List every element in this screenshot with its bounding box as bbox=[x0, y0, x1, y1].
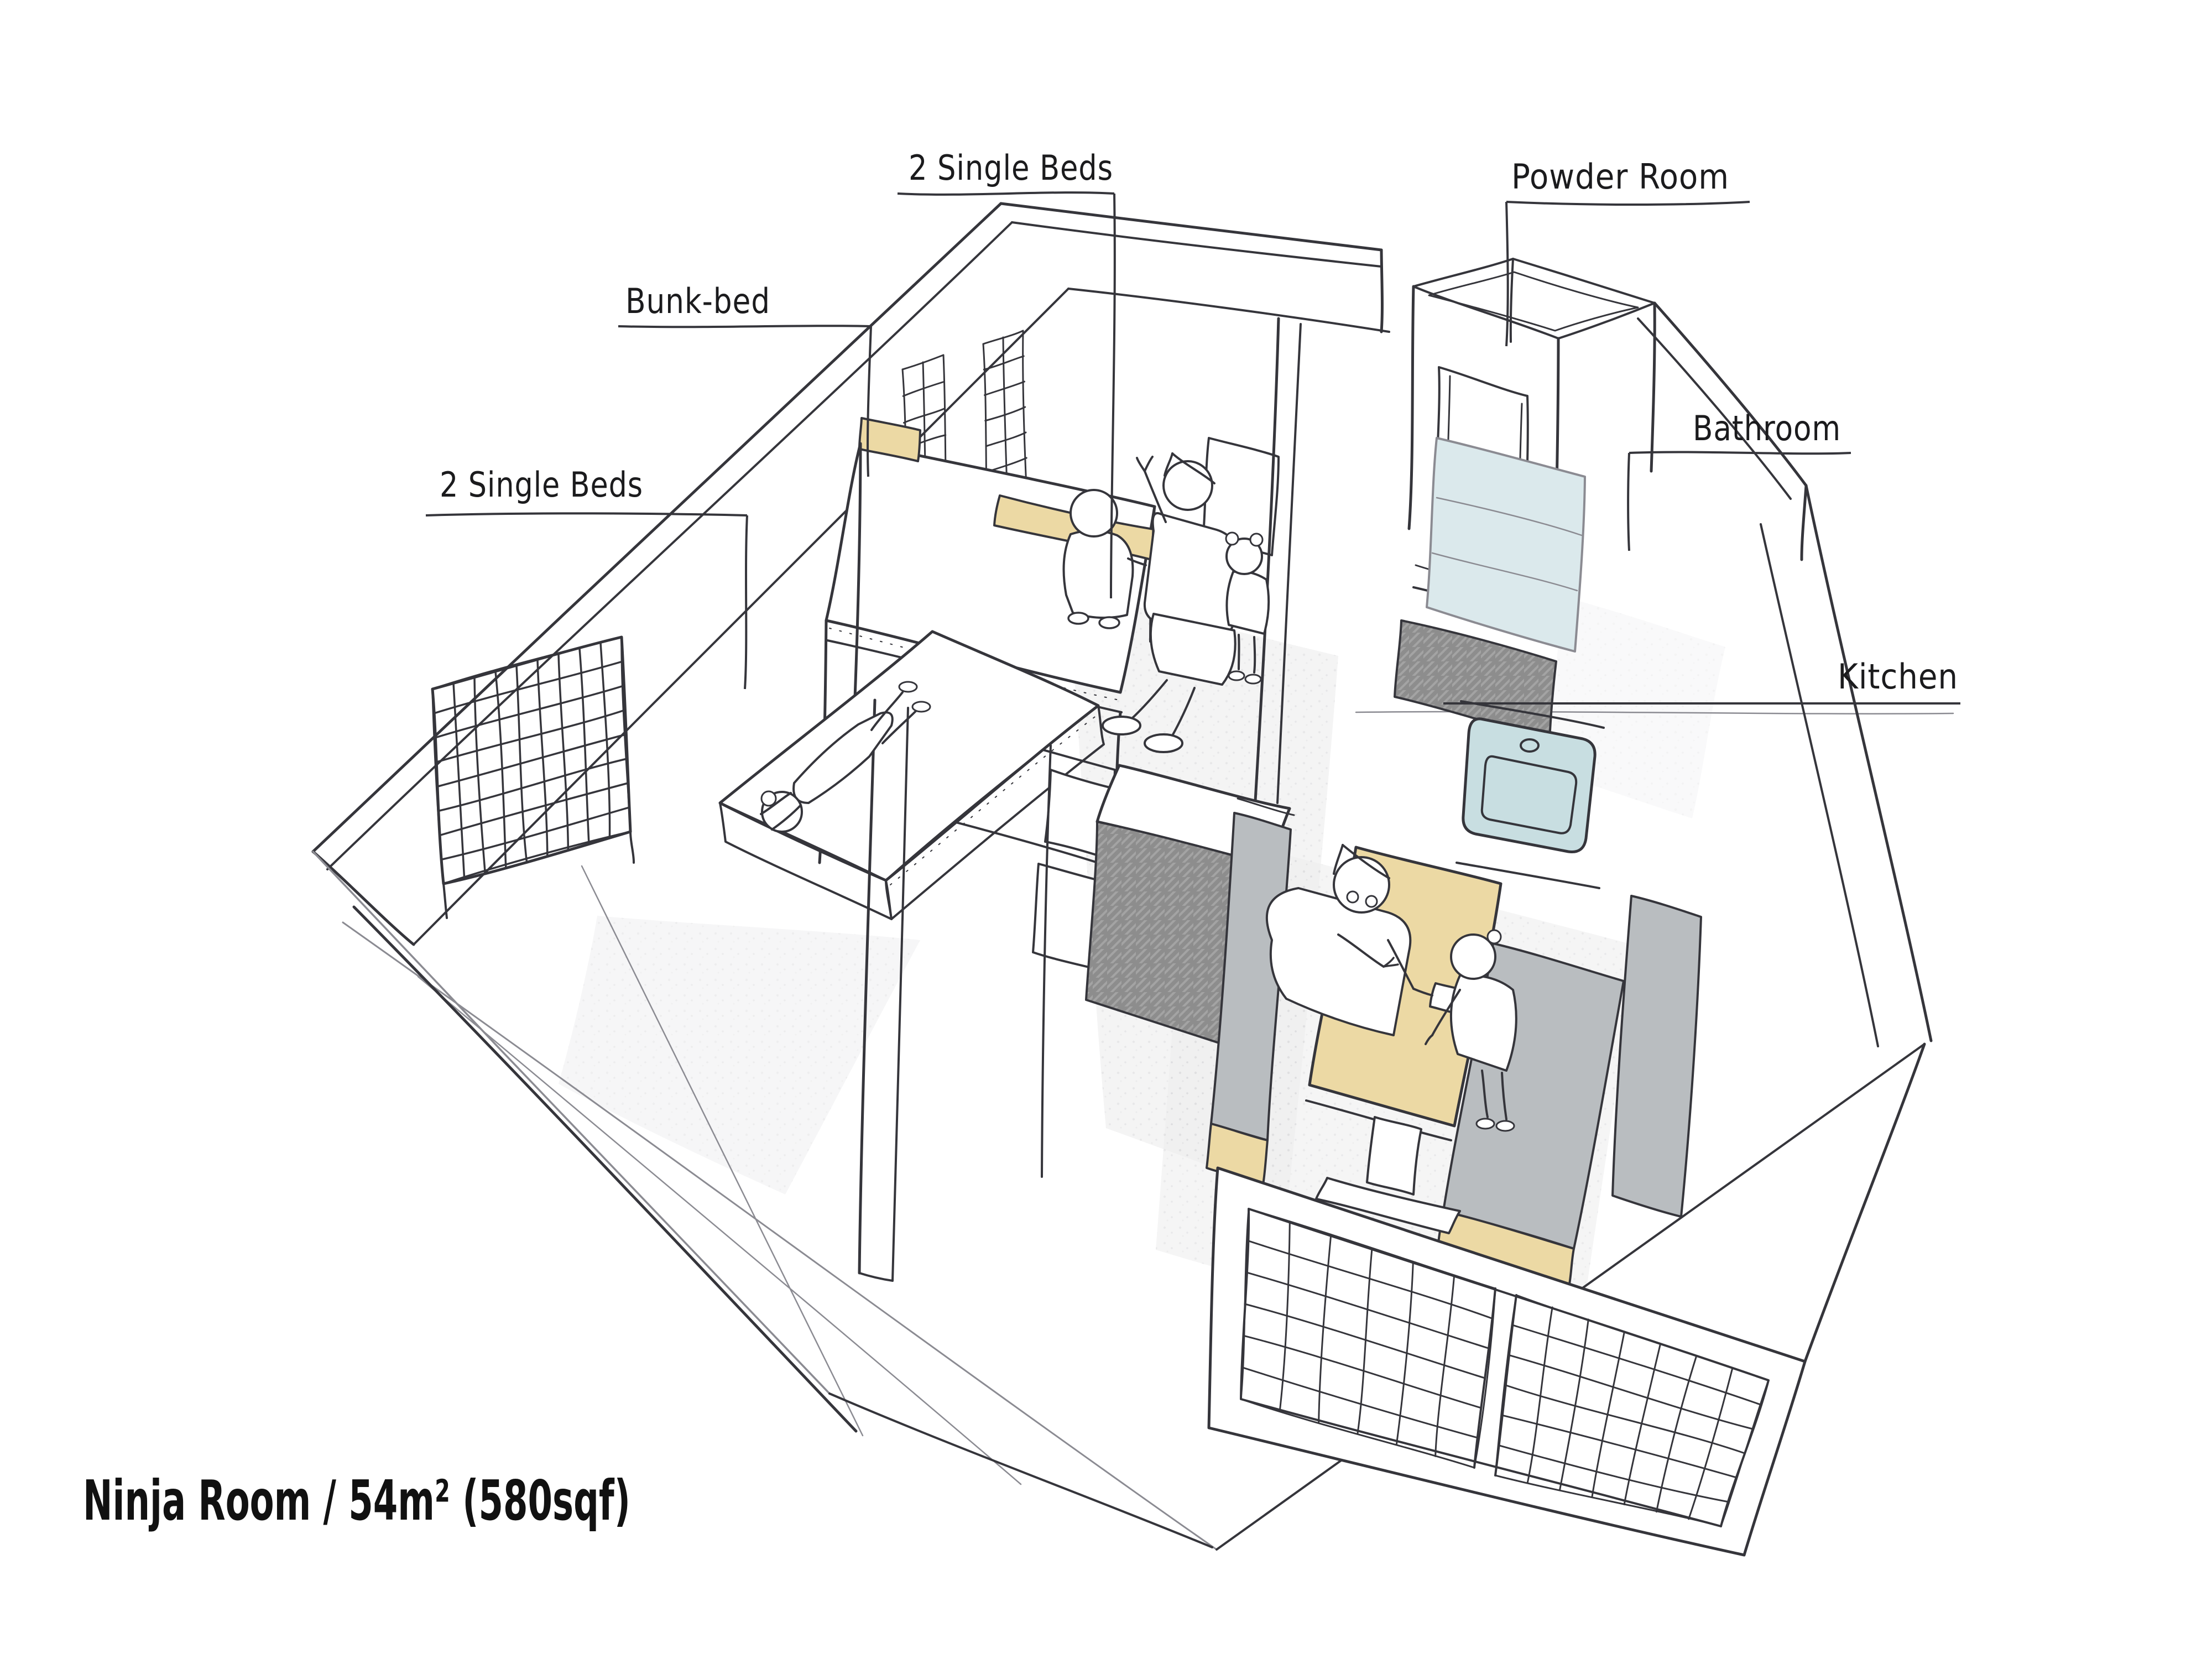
figure-lying-child-bun bbox=[761, 791, 776, 806]
leader-underline-bunk-bed bbox=[618, 326, 871, 327]
figure-child-bunk-foot bbox=[1068, 613, 1088, 624]
figure-toddler-body bbox=[1227, 571, 1269, 634]
figure-girl-bun bbox=[1488, 930, 1501, 943]
figure-toddler-leg bbox=[1239, 635, 1239, 669]
label-text-powder-room: Powder Room bbox=[1511, 156, 1729, 197]
label-text-kitchen: Kitchen bbox=[1838, 656, 1958, 697]
figure-toddler-leg bbox=[1254, 637, 1255, 672]
figure-lying-child-foot bbox=[899, 682, 917, 692]
figure-child-bunk-head bbox=[1071, 490, 1117, 536]
bathtub-drain bbox=[1521, 739, 1538, 752]
figure-child-bunk-foot bbox=[1099, 617, 1119, 628]
figure-girl-foot bbox=[1496, 1121, 1514, 1131]
table-pedestal bbox=[1367, 1117, 1421, 1194]
figure-lying-child-foot bbox=[912, 702, 930, 712]
label-text-bathroom: Bathroom bbox=[1693, 408, 1841, 448]
label-text-single-beds-left: 2 Single Beds bbox=[440, 465, 643, 505]
figure-father-glasses bbox=[1347, 891, 1358, 902]
figure-toddler-hair-bun bbox=[1226, 533, 1238, 545]
figure-father-glasses bbox=[1366, 896, 1377, 907]
figure-child-bunk-body bbox=[1064, 530, 1133, 618]
floorplan-sketch: 2 Single BedsPowder RoomBunk-bed2 Single… bbox=[0, 0, 2212, 1659]
figure-mother-shoe bbox=[1103, 717, 1140, 734]
drawing-title: Ninja Room / 54m² (580sqf) bbox=[83, 1468, 630, 1533]
wall-n-edge bbox=[1381, 250, 1382, 332]
figure-toddler-shoe bbox=[1245, 675, 1261, 684]
label-text-bunk-bed: Bunk-bed bbox=[625, 281, 770, 321]
figure-toddler-shoe bbox=[1229, 671, 1244, 680]
figure-girl-foot bbox=[1477, 1119, 1494, 1129]
label-text-single-beds-top: 2 Single Beds bbox=[909, 148, 1113, 188]
figure-mother-head bbox=[1164, 461, 1212, 510]
figure-father-head bbox=[1334, 857, 1389, 912]
figure-mother-shoe bbox=[1145, 734, 1182, 752]
figure-toddler-hair-bun bbox=[1250, 534, 1262, 546]
page: 2 Single BedsPowder RoomBunk-bed2 Single… bbox=[0, 0, 2212, 1659]
leader-line-bathroom bbox=[1628, 453, 1629, 551]
